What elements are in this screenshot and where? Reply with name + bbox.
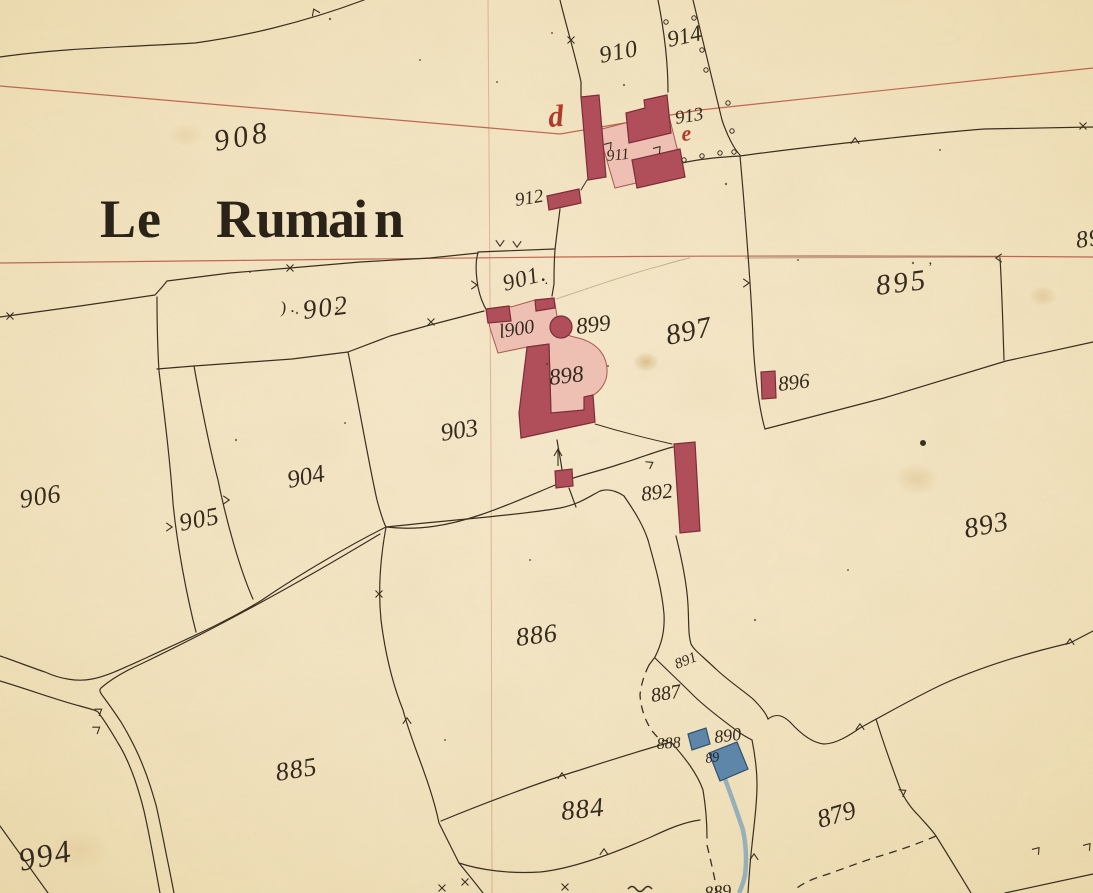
svg-text:896: 896 [777, 368, 812, 396]
svg-text:895: 895 [874, 264, 930, 302]
svg-text:912: 912 [513, 186, 545, 211]
svg-text:890: 890 [713, 724, 742, 747]
svg-text:899: 899 [575, 310, 613, 339]
svg-text:892: 892 [640, 478, 675, 506]
svg-text:884: 884 [559, 792, 605, 826]
svg-text:) .: ) . [278, 297, 295, 317]
svg-text:911: 911 [606, 146, 630, 165]
svg-text:898: 898 [548, 361, 586, 390]
svg-text:886: 886 [514, 618, 559, 652]
svg-text:89: 89 [1074, 225, 1093, 254]
svg-text:902: 902 [301, 290, 351, 325]
svg-text:LeRumain: LeRumain [100, 189, 404, 249]
svg-text:89: 89 [704, 750, 720, 767]
svg-text:889: 889 [703, 880, 732, 893]
svg-text:888: 888 [656, 734, 681, 753]
